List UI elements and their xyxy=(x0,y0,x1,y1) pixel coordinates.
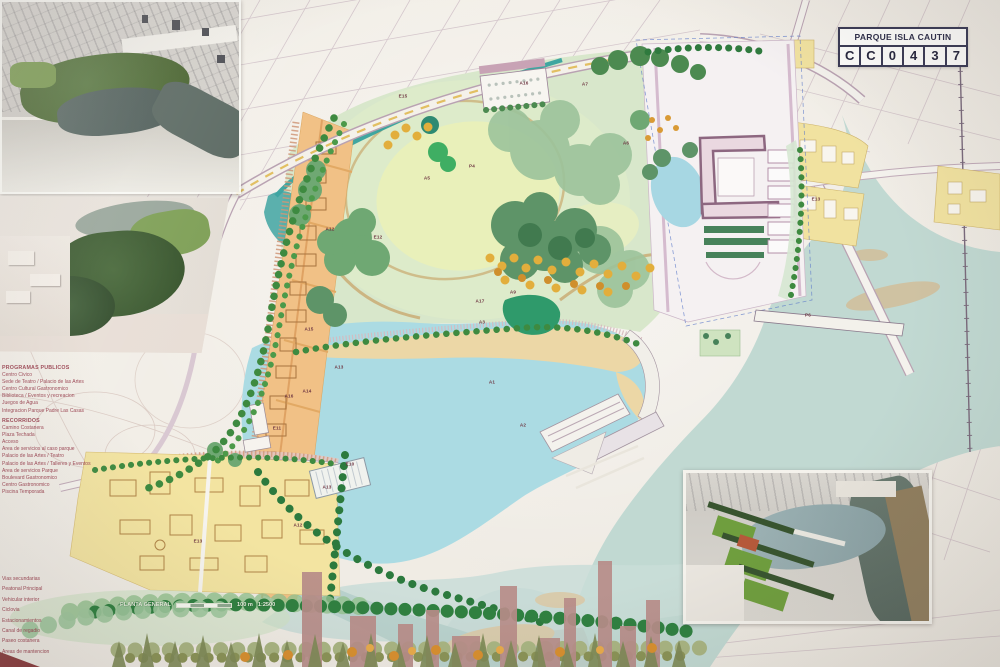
plan-label: E15 xyxy=(399,94,408,99)
code-cell: C xyxy=(861,47,882,65)
code-cell: 4 xyxy=(904,47,925,65)
plan-label: E13 xyxy=(812,197,821,202)
legend-item: Area de servicios Parque xyxy=(2,468,120,475)
legend-header: PROGRAMAS PUBLICOS xyxy=(2,365,120,372)
inset1-tower xyxy=(142,15,148,23)
legend-item: Boulevard Gastronomico xyxy=(2,475,120,482)
inset3-city-left xyxy=(686,565,744,621)
legend-item: Centro Cultural Gastronomico xyxy=(2,386,120,393)
title-block: PARQUE ISLA CAUTIN C C 0 4 3 7 xyxy=(838,27,968,67)
plan-label: A12 xyxy=(325,227,334,232)
inset-aerial-lagoon xyxy=(683,470,932,624)
drawing-name: PLANTA GENERAL xyxy=(120,602,171,608)
legend-item: Plaza Techada xyxy=(2,432,120,439)
parking-a16 xyxy=(479,58,550,110)
legend-item: Palacio de las Artes / Talleres y Evento… xyxy=(2,461,120,468)
legend-circulation: Vias secundarias Peatonal Principal Vehi… xyxy=(2,574,82,657)
plan-label: P4 xyxy=(469,164,475,169)
scale-bar-graphic xyxy=(176,603,232,608)
masterplan-poster: PARQUE ISLA CAUTIN C C 0 4 3 7 PROGRAMAS… xyxy=(0,0,1000,667)
inset2-slab xyxy=(30,274,60,286)
plan-label: A14 xyxy=(302,389,311,394)
plan-label: E13 xyxy=(194,539,203,544)
legend-header: RECORRIDOS xyxy=(2,418,120,425)
legend-item: Sede de Teatro / Palacio de las Artes xyxy=(2,379,120,386)
legend-item: Camino Costanera xyxy=(2,425,120,432)
legend-item: Peatonal Principal xyxy=(2,584,82,594)
inset-aerial-park-detail xyxy=(0,196,229,353)
legend-item: Palacio de las Artes / Teatro xyxy=(2,453,120,460)
inset-aerial-overview xyxy=(0,0,241,194)
plan-label: A16 xyxy=(284,394,293,399)
legend-item: Biblioteca / Eventos y recreacion xyxy=(2,393,120,400)
plan-label: A17 xyxy=(475,299,484,304)
legend-program: RECORRIDOS Camino Costanera Plaza Techad… xyxy=(2,418,120,496)
inset1-tower xyxy=(202,28,209,36)
plan-label: E11 xyxy=(273,426,282,431)
legend-item: Integracion Parque Padre Las Casas xyxy=(2,408,120,415)
plan-label: E12 xyxy=(374,235,383,240)
inset1-fields xyxy=(10,62,56,88)
plan-label: A12 xyxy=(293,523,302,528)
plan-label: A15 xyxy=(304,327,313,332)
legend-item: Vias secundarias xyxy=(2,574,82,584)
plan-label: E10 xyxy=(346,462,355,467)
inset2-slab xyxy=(8,251,34,265)
legend-item: Area de servicios al caso parque xyxy=(2,446,120,453)
legend-item: Estacionamientos xyxy=(2,616,82,626)
legend-item: Paseo costanera xyxy=(2,636,82,646)
inset3-buildings-top xyxy=(836,481,896,497)
plan-label: A6 xyxy=(623,141,629,146)
plan-label: A2 xyxy=(520,423,526,428)
code-cell: C xyxy=(840,47,861,65)
legend-item: Centro Civico xyxy=(2,372,120,379)
legend-item: Centro Gastronomico xyxy=(2,482,120,489)
legend-item: Canal de regadio xyxy=(2,626,82,636)
inset2-slab xyxy=(6,291,30,303)
plan-label: A13 xyxy=(334,365,343,370)
plan-label: A5 xyxy=(424,176,430,181)
plan-label: A9 xyxy=(510,290,516,295)
plan-label: A7 xyxy=(582,82,588,87)
plan-label: A1 xyxy=(489,380,495,385)
scale-bar: PLANTA GENERAL 100 m 1:2500 xyxy=(120,602,275,608)
legend-buildings: PROGRAMAS PUBLICOS Centro Civico Sede de… xyxy=(2,365,120,415)
plan-label: A3 xyxy=(479,320,485,325)
inset1-tower xyxy=(217,55,225,63)
scale-distance: 100 m xyxy=(237,602,253,608)
scale-ratio: 1:2500 xyxy=(258,602,275,608)
legend-item: Piscina Temporada xyxy=(2,489,120,496)
plan-label: A16 xyxy=(519,81,528,86)
inset1-tower xyxy=(172,20,180,30)
legend-item: Vehicular interior xyxy=(2,595,82,605)
code-cell: 7 xyxy=(947,47,966,65)
project-code: C C 0 4 3 7 xyxy=(840,47,966,65)
code-cell: 0 xyxy=(883,47,904,65)
plan-label: A13 xyxy=(322,485,331,490)
code-cell: 3 xyxy=(925,47,946,65)
legend-item: Juegos de Agua xyxy=(2,400,120,407)
project-title: PARQUE ISLA CAUTIN xyxy=(840,29,966,47)
legend-item: Ciclovia xyxy=(2,605,82,615)
legend-item: Areas de mantencion xyxy=(2,647,82,657)
plan-label: P6 xyxy=(805,313,811,318)
legend-item: Acceso xyxy=(2,439,120,446)
